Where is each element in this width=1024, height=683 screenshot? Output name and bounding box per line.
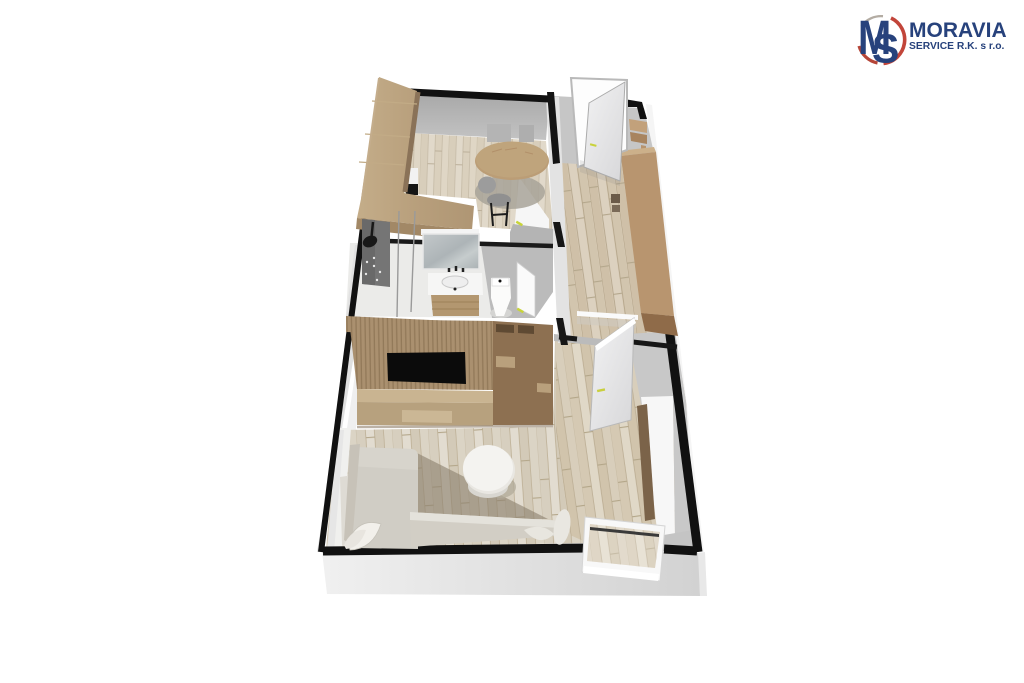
svg-text:MORAVIA: MORAVIA [909, 19, 1007, 42]
svg-text:SERVICE R.K. s r.o.: SERVICE R.K. s r.o. [909, 41, 1005, 52]
svg-text:S: S [872, 26, 899, 72]
